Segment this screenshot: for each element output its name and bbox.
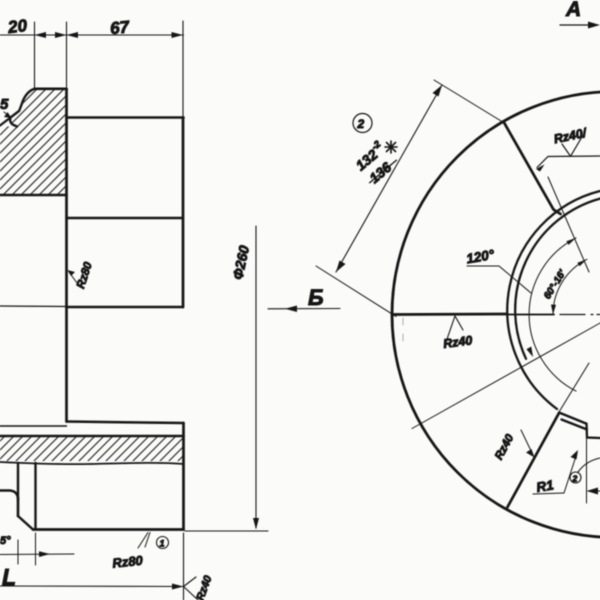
svg-text:R1: R1 — [535, 477, 555, 495]
svg-text:5°: 5° — [0, 535, 11, 547]
svg-text:Б: Б — [308, 285, 324, 310]
svg-text:A: A — [565, 0, 581, 21]
svg-text:20: 20 — [6, 16, 29, 37]
svg-text:1: 1 — [160, 539, 165, 549]
svg-text:L: L — [2, 564, 16, 590]
svg-text:67: 67 — [109, 17, 131, 38]
svg-text:2: 2 — [357, 117, 365, 131]
svg-text:5: 5 — [0, 96, 9, 113]
svg-text:2: 2 — [572, 474, 578, 484]
